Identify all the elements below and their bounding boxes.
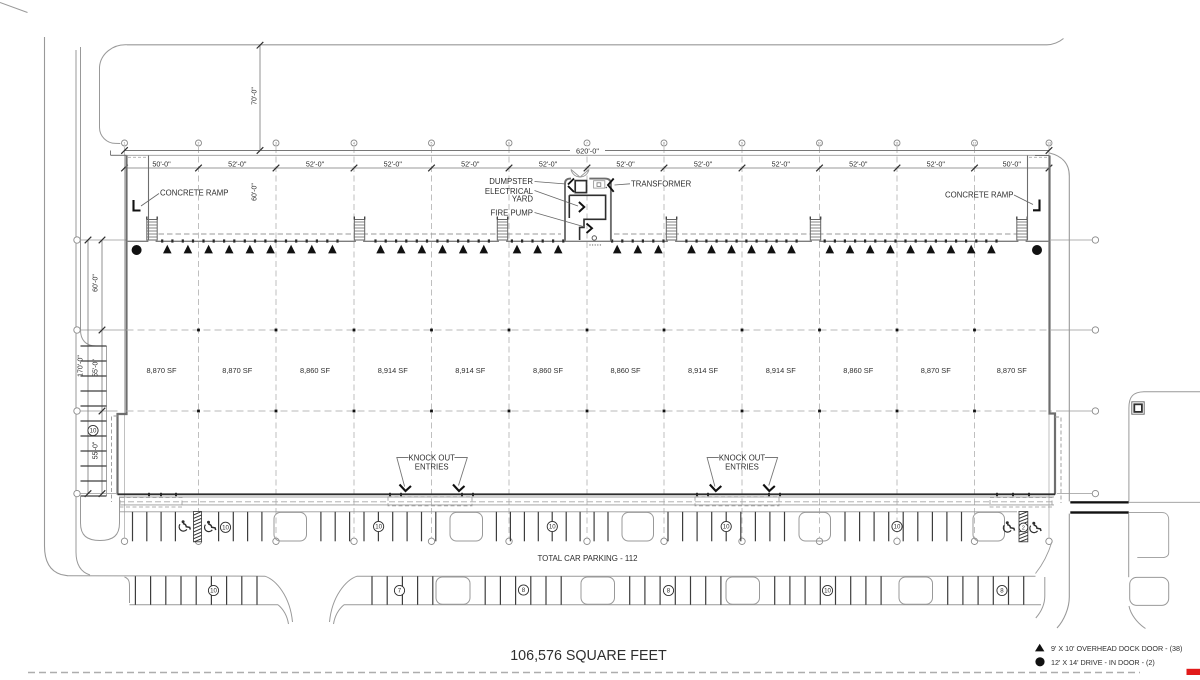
svg-text:10: 10 [894, 524, 901, 531]
svg-text:KNOCK OUT: KNOCK OUT [719, 453, 766, 462]
svg-text:10: 10 [723, 524, 730, 531]
svg-text:10: 10 [90, 428, 97, 435]
svg-text:3: 3 [275, 141, 277, 145]
svg-text:8,870 SF: 8,870 SF [147, 366, 177, 375]
svg-text:52'-0": 52'-0" [228, 159, 247, 168]
svg-text:10: 10 [210, 588, 217, 595]
svg-text:8,860 SF: 8,860 SF [300, 366, 330, 375]
svg-text:8,914 SF: 8,914 SF [688, 366, 718, 375]
svg-text:KNOCK OUT: KNOCK OUT [409, 453, 456, 462]
svg-text:8,870 SF: 8,870 SF [222, 366, 252, 375]
svg-text:ENTRIES: ENTRIES [725, 462, 759, 471]
svg-text:2: 2 [198, 141, 200, 145]
svg-text:7: 7 [586, 141, 588, 145]
svg-text:52'-0": 52'-0" [461, 159, 480, 168]
svg-text:52'-0": 52'-0" [927, 159, 946, 168]
svg-text:170'-0": 170'-0" [77, 355, 84, 377]
svg-text:70'-0": 70'-0" [251, 87, 258, 105]
svg-text:10: 10 [549, 524, 556, 531]
svg-text:55'-0": 55'-0" [92, 441, 99, 459]
svg-text:52'-0": 52'-0" [694, 159, 713, 168]
svg-text:10: 10 [375, 524, 382, 531]
svg-text:52'-0": 52'-0" [384, 159, 403, 168]
svg-text:8,870 SF: 8,870 SF [997, 366, 1027, 375]
svg-text:620'-0": 620'-0" [576, 146, 599, 155]
svg-text:TRANSFORMER: TRANSFORMER [631, 180, 692, 189]
svg-text:1: 1 [124, 141, 126, 145]
svg-text:CONCRETE RAMP: CONCRETE RAMP [945, 191, 1013, 200]
svg-text:9' X 10' OVERHEAD DOCK DOOR -: 9' X 10' OVERHEAD DOCK DOOR - (38) [1051, 644, 1182, 653]
svg-text:TOTAL CAR PARKING - 112: TOTAL CAR PARKING - 112 [538, 554, 638, 563]
svg-text:52'-0": 52'-0" [616, 159, 635, 168]
svg-text:8: 8 [663, 141, 665, 145]
svg-text:52'-0": 52'-0" [772, 159, 791, 168]
svg-text:YARD: YARD [512, 194, 533, 203]
svg-text:CONCRETE RAMP: CONCRETE RAMP [160, 188, 228, 197]
svg-text:FIRE PUMP: FIRE PUMP [491, 209, 533, 218]
svg-text:50'-0": 50'-0" [152, 159, 171, 168]
svg-text:60'-0": 60'-0" [251, 183, 258, 201]
svg-text:10: 10 [222, 524, 229, 531]
svg-text:8,870 SF: 8,870 SF [921, 366, 951, 375]
svg-text:4: 4 [353, 141, 355, 145]
svg-text:106,576 SQUARE FEET: 106,576 SQUARE FEET [510, 648, 667, 664]
svg-text:50'-0": 50'-0" [1003, 159, 1022, 168]
svg-text:13: 13 [1047, 141, 1051, 145]
svg-text:ENTRIES: ENTRIES [415, 462, 449, 471]
svg-text:8,914 SF: 8,914 SF [766, 366, 796, 375]
svg-text:12' X 14' DRIVE - IN DOOR - (: 12' X 14' DRIVE - IN DOOR - (2) [1051, 658, 1155, 667]
svg-text:52'-0": 52'-0" [849, 159, 868, 168]
svg-text:11: 11 [895, 141, 899, 145]
svg-text:2: 2 [1022, 525, 1025, 531]
svg-text:8,860 SF: 8,860 SF [843, 366, 873, 375]
svg-text:5: 5 [431, 141, 433, 145]
svg-text:9: 9 [741, 141, 743, 145]
svg-text:8,914 SF: 8,914 SF [378, 366, 408, 375]
svg-text:8,860 SF: 8,860 SF [533, 366, 563, 375]
svg-text:8,914 SF: 8,914 SF [455, 366, 485, 375]
svg-text:8,860 SF: 8,860 SF [611, 366, 641, 375]
svg-text:10: 10 [824, 588, 831, 595]
svg-text:DUMPSTER: DUMPSTER [489, 177, 533, 186]
svg-text:6: 6 [508, 141, 510, 145]
svg-text:12: 12 [973, 141, 977, 145]
svg-text:10: 10 [818, 141, 822, 145]
svg-text:52'-0": 52'-0" [539, 159, 558, 168]
svg-text:60'-0": 60'-0" [92, 274, 99, 292]
svg-text:52'-0": 52'-0" [306, 159, 325, 168]
